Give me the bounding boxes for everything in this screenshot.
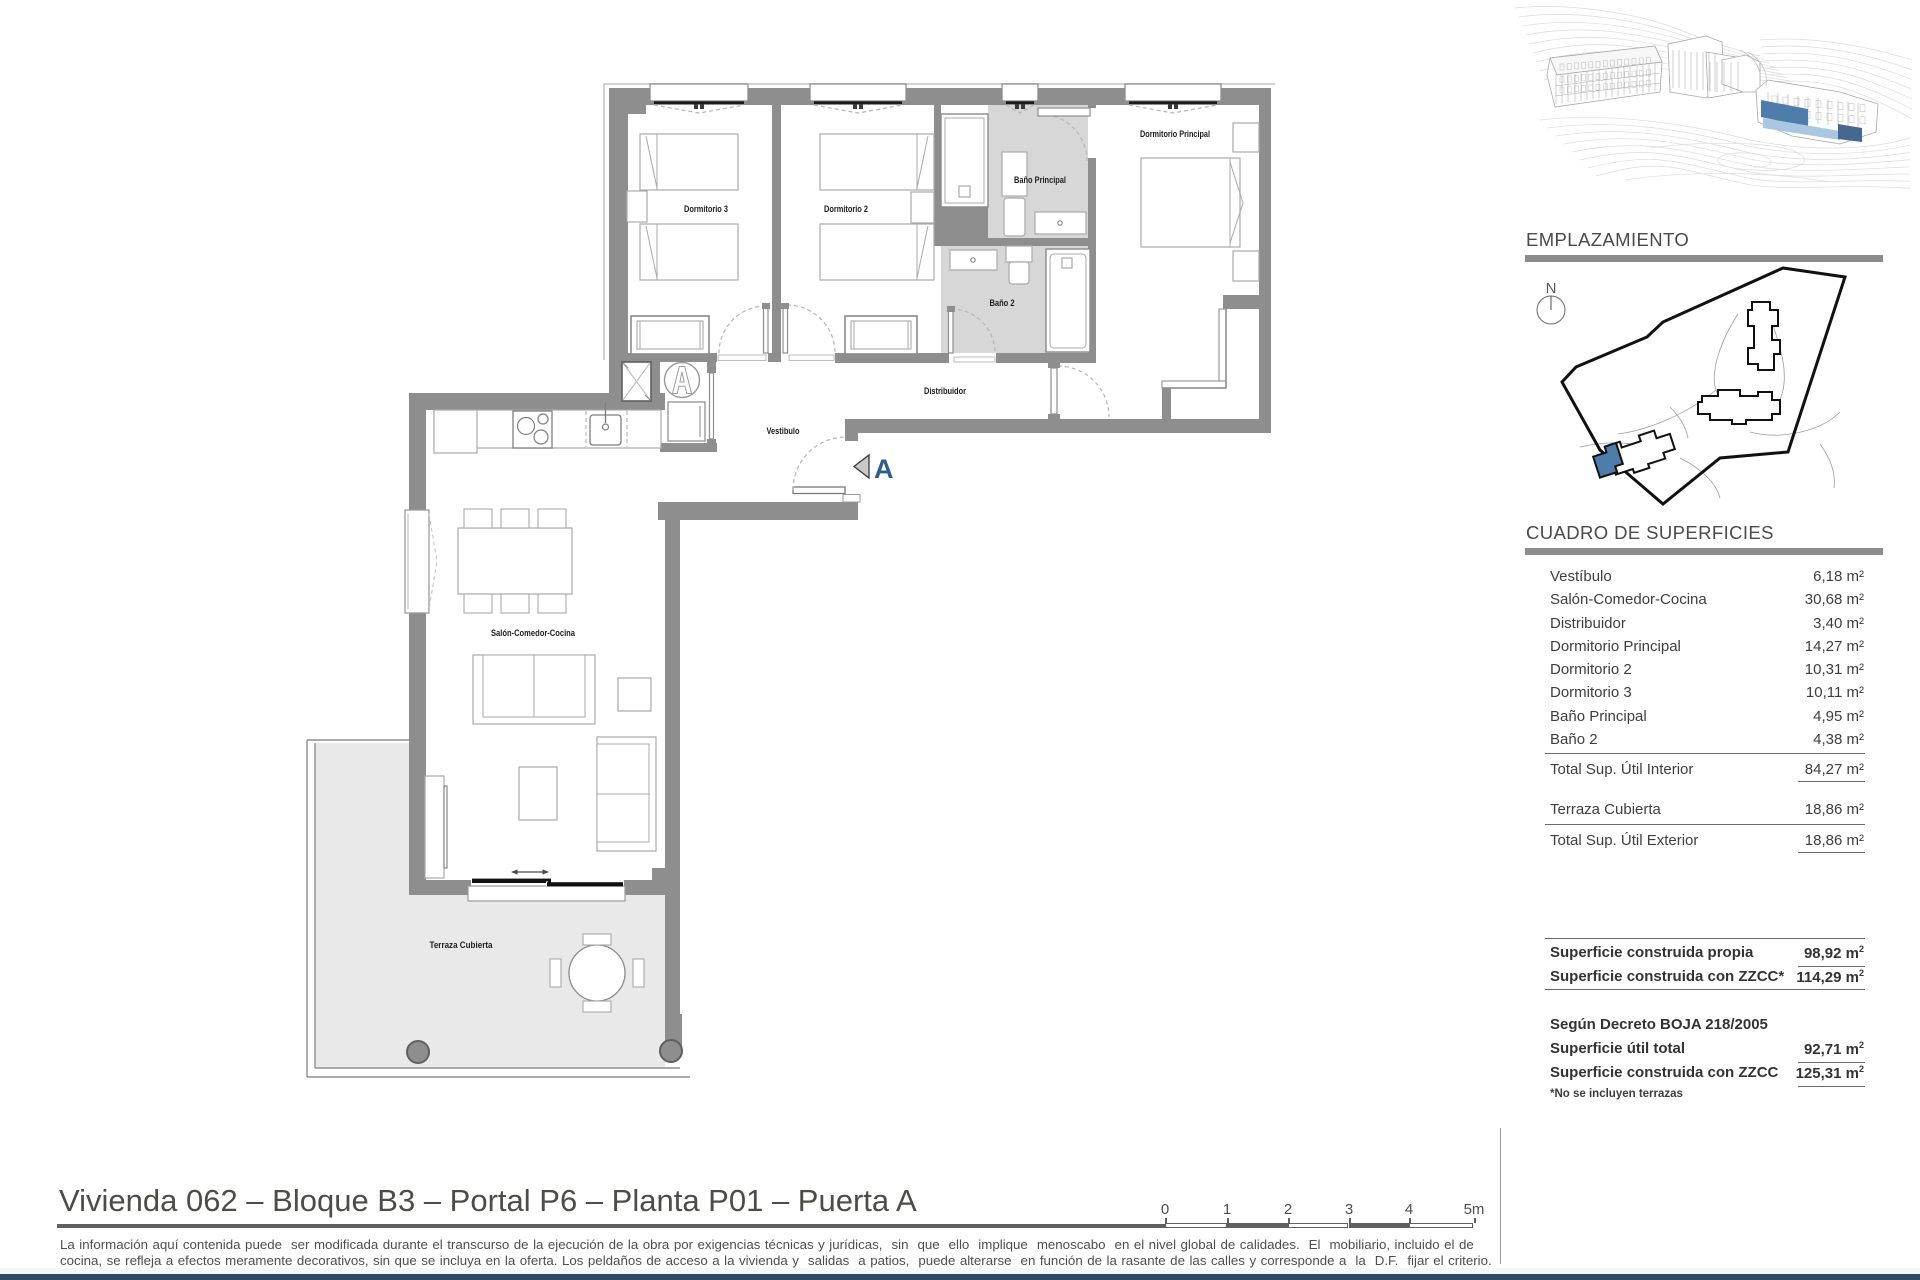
svg-text:N: N — [1546, 280, 1557, 297]
svg-text:Terraza Cubierta: Terraza Cubierta — [430, 940, 494, 951]
svg-text:Dormitorio 3: Dormitorio 3 — [684, 204, 728, 215]
svg-text:Salón-Comedor-Cocina: Salón-Comedor-Cocina — [491, 628, 576, 639]
svg-text:Dormitorio 2: Dormitorio 2 — [824, 204, 868, 215]
svg-text:Baño 2: Baño 2 — [990, 298, 1015, 309]
svg-text:Vestibulo: Vestibulo — [767, 426, 800, 437]
svg-text:Baño Principal: Baño Principal — [1014, 175, 1066, 186]
svg-text:Distribuidor: Distribuidor — [924, 386, 966, 397]
svg-text:A: A — [874, 454, 894, 484]
svg-text:Dormitorio Principal: Dormitorio Principal — [1140, 129, 1210, 140]
